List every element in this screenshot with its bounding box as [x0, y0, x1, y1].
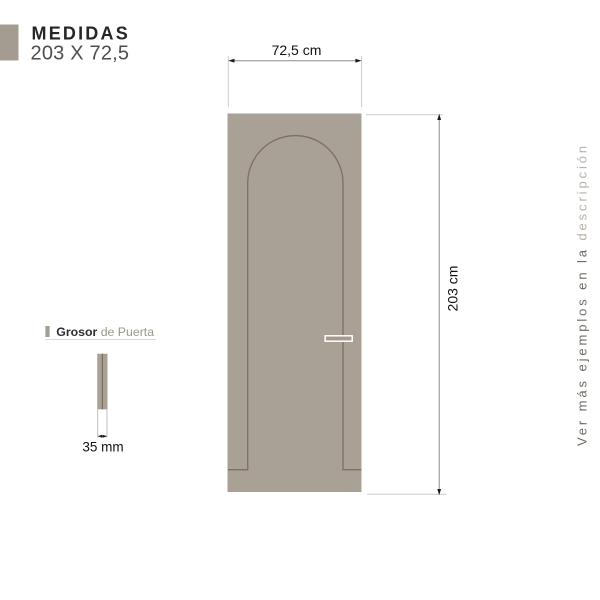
svg-text:35 mm: 35 mm	[82, 439, 123, 454]
svg-text:203 X 72,5: 203 X 72,5	[31, 43, 130, 65]
svg-text:Grosor de Puerta: Grosor de Puerta	[56, 325, 154, 339]
svg-text:72,5 cm: 72,5 cm	[272, 42, 322, 58]
svg-text:Ver más ejemplos en la descrip: Ver más ejemplos en la descripción	[575, 143, 590, 446]
svg-text:203 cm: 203 cm	[445, 266, 461, 312]
svg-text:MEDIDAS: MEDIDAS	[32, 23, 130, 43]
